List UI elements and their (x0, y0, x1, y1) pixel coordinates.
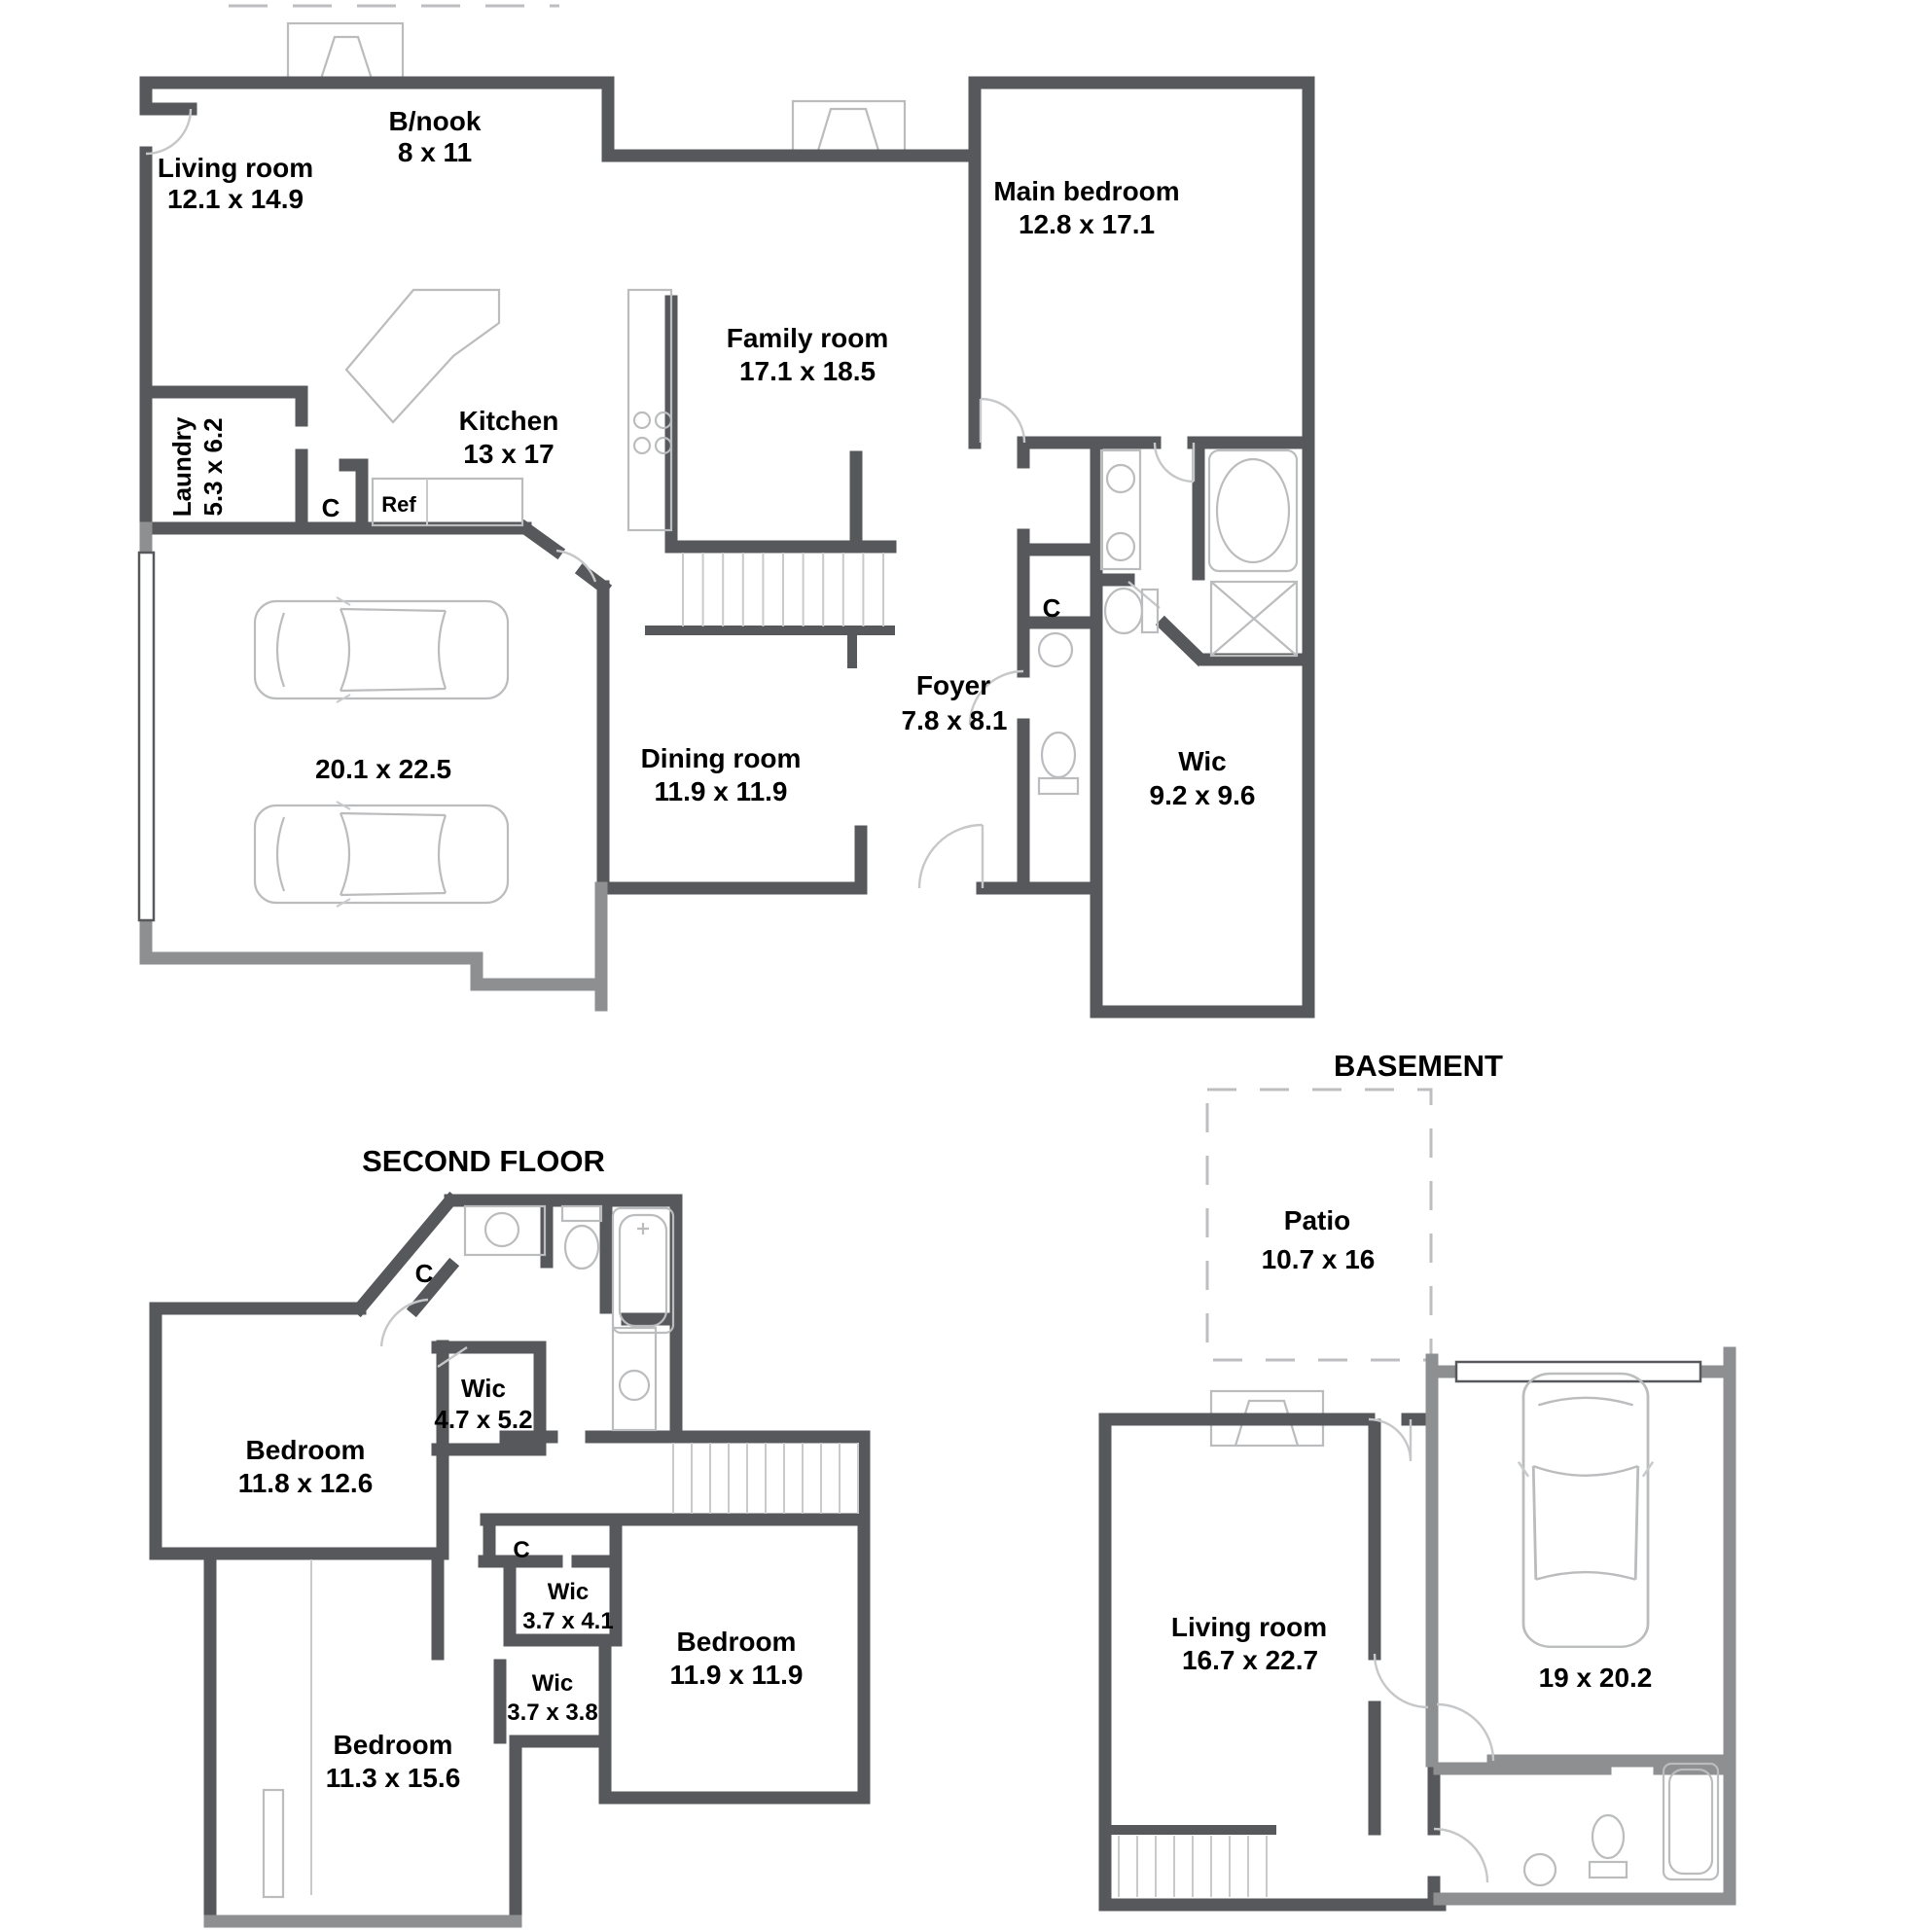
stove-burner-icon (634, 412, 650, 428)
closet-label: C (513, 1537, 529, 1563)
dining-room-label: Dining room (641, 743, 802, 773)
laundry-label: Laundry (167, 416, 197, 517)
bathtub-basin (1217, 459, 1289, 562)
second-floor-walls (156, 1200, 864, 1921)
living-room-fireplace-icon (288, 23, 403, 79)
garage-dims: 20.1 x 22.5 (315, 754, 451, 784)
vanity-counter (613, 1328, 656, 1430)
toilet-icon (1592, 1815, 1624, 1858)
garage-car-2 (255, 802, 508, 907)
foyer-label: Foyer (916, 670, 990, 700)
family-room-window-icon (793, 101, 905, 154)
kitchen-island (346, 290, 499, 422)
living-room-label: Living room (158, 153, 313, 183)
car-body (255, 805, 508, 903)
garage-car-1 (255, 597, 508, 702)
bedroom-dims: 11.3 x 15.6 (326, 1763, 461, 1793)
second-floor-plan: SECOND FLOOR Bedroom 11.8 x 12.6 C (156, 1144, 864, 1921)
toilet-icon (565, 1226, 598, 1269)
stair-rail-main (650, 630, 890, 663)
foyer-dims: 7.8 x 8.1 (902, 705, 1008, 735)
basement-gray-walls (1432, 1353, 1730, 1899)
sink-icon (1524, 1854, 1556, 1885)
toilet-tank (1039, 778, 1078, 794)
bedroom-label: Bedroom (334, 1730, 453, 1760)
floor-plan-canvas: Living room 12.1 x 14.9 B/nook 8 x 11 Ma… (0, 0, 1932, 1932)
garage-door-window (139, 553, 154, 920)
wic-dims: 3.7 x 3.8 (507, 1699, 597, 1726)
basement-car (1519, 1374, 1653, 1647)
powder-room-fixtures (1039, 633, 1078, 794)
kitchen-counter-right (628, 290, 671, 530)
laundry-dims: 5.3 x 6.2 (198, 417, 228, 516)
bnook-dims: 8 x 11 (398, 137, 472, 167)
basement-bath-fixtures (1524, 1764, 1718, 1885)
floor-plan-page: Living room 12.1 x 14.9 B/nook 8 x 11 Ma… (0, 0, 1932, 1932)
dining-room-dims: 11.9 x 11.9 (654, 776, 787, 806)
bedroom-label: Bedroom (246, 1435, 366, 1465)
second-floor-title: SECOND FLOOR (362, 1144, 605, 1178)
stove-burner-icon (634, 438, 650, 453)
door-arcs-second (381, 1300, 467, 1367)
living-room-label: Living room (1171, 1612, 1327, 1642)
bedroom-dims: 11.9 x 11.9 (669, 1660, 803, 1690)
car-body (255, 601, 508, 698)
bnook-label: B/nook (389, 106, 482, 136)
main-floor-plan: Living room 12.1 x 14.9 B/nook 8 x 11 Ma… (139, 6, 1308, 1012)
wic-dims: 4.7 x 5.2 (434, 1405, 532, 1434)
bathtub-basin (1669, 1770, 1712, 1874)
basement-plan: BASEMENT (1105, 1049, 1730, 1905)
window-trapezoid (817, 109, 879, 154)
sink-icon (1107, 533, 1134, 560)
wic-dims: 9.2 x 9.6 (1150, 780, 1256, 810)
toilet-icon (1105, 589, 1142, 633)
fireplace-trapezoid (321, 37, 372, 79)
second-bath2-fixtures (613, 1328, 656, 1430)
closet-label: C (415, 1259, 434, 1288)
tub-faucet (637, 1223, 649, 1234)
toilet-tank (1590, 1862, 1627, 1878)
toilet-icon (1042, 733, 1075, 777)
family-room-label: Family room (727, 323, 888, 353)
closet-label: C (322, 493, 340, 522)
basement-title: BASEMENT (1334, 1049, 1503, 1083)
car-detail (1533, 1398, 1638, 1580)
wic-label: Wic (461, 1374, 506, 1403)
fireplace-box (288, 23, 403, 79)
sink-icon (620, 1371, 649, 1400)
bedroom-dims: 11.8 x 12.6 (238, 1468, 374, 1498)
stairs-second (673, 1443, 858, 1514)
wic-label: Wic (1178, 746, 1227, 776)
fridge-label: Ref (381, 492, 416, 517)
closet-label: C (1043, 593, 1061, 623)
toilet-tank (562, 1206, 601, 1221)
wic-dims: 3.7 x 4.1 (522, 1608, 613, 1634)
kitchen-label: Kitchen (459, 406, 559, 436)
living-room-dims: 12.1 x 14.9 (167, 184, 304, 214)
car-detail (277, 609, 446, 691)
window-bar (264, 1790, 283, 1897)
stairs-basement (1119, 1836, 1267, 1897)
patio-dims: 10.7 x 16 (1262, 1244, 1376, 1274)
kitchen-dims: 13 x 17 (463, 439, 554, 469)
family-room-dims: 17.1 x 18.5 (739, 356, 876, 386)
shower-x (1211, 582, 1297, 656)
bedroom-label: Bedroom (677, 1627, 797, 1657)
sink-icon (485, 1213, 519, 1246)
car-detail (277, 813, 446, 895)
stairs-main (683, 553, 883, 626)
wic-label: Wic (548, 1579, 589, 1605)
garage-window (1456, 1362, 1700, 1381)
car-body (1523, 1374, 1648, 1647)
patio-label: Patio (1284, 1205, 1350, 1235)
main-bedroom-label: Main bedroom (993, 176, 1179, 206)
basement-garage-dims: 19 x 20.2 (1539, 1663, 1653, 1693)
wic-label: Wic (532, 1670, 573, 1697)
living-room-dims: 16.7 x 22.7 (1182, 1645, 1318, 1675)
bathtub-icon (1209, 450, 1297, 571)
sink-icon (1107, 465, 1134, 492)
sink-icon (1039, 633, 1072, 666)
main-bedroom-dims: 12.8 x 17.1 (1019, 209, 1155, 239)
bathtub-icon (1664, 1764, 1718, 1879)
